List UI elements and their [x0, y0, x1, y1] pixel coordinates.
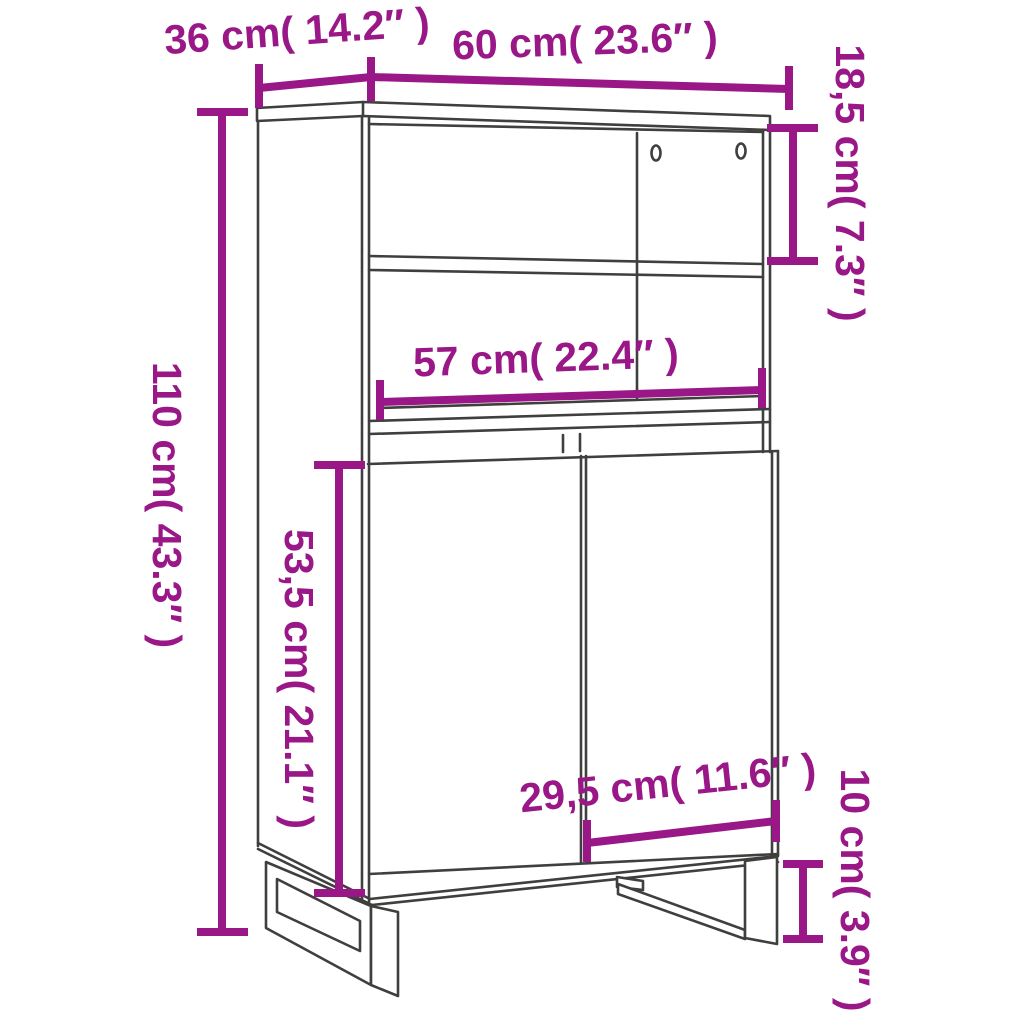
dimension-depth: 36 cm( 14.2″ ): [163, 0, 431, 108]
dimension-diagram-page: 36 cm( 14.2″ ) 60 cm( 23.6″ ) 18,5 cm( 7…: [0, 0, 1024, 1024]
dimension-leg-height: 10 cm( 3.9″ ): [783, 769, 878, 1012]
inner-width-label: 57 cm( 22.4″ ): [412, 330, 679, 385]
right-leg-near-post: [745, 857, 777, 944]
dimension-total-height: 110 cm( 43.3″ ): [144, 112, 248, 932]
left-leg-front-post: [371, 906, 398, 996]
right-leg-runner: [618, 884, 745, 939]
dimension-width: 60 cm( 23.6″ ): [371, 13, 789, 110]
leg-height-label: 10 cm( 3.9″ ): [832, 769, 878, 1012]
door-height-label: 53,5 cm( 21.1″ ): [276, 529, 322, 829]
width-label: 60 cm( 23.6″ ): [451, 13, 718, 68]
middle-board-front-top: [369, 409, 770, 421]
doors-bottom-edge: [369, 854, 778, 874]
total-height-label: 110 cm( 43.3″ ): [144, 362, 190, 648]
depth-line: [259, 77, 371, 88]
left-leg: [266, 862, 398, 996]
base-front-bottom-edge: [372, 862, 778, 905]
shelf-front-bottom-edge: [369, 270, 763, 277]
top-shelf-label: 18,5 cm( 7.3″ ): [827, 44, 873, 321]
doors-top-edge: [368, 451, 778, 464]
width-line: [371, 77, 789, 89]
screw-hole-right: [737, 144, 746, 159]
shelf-front-top-edge: [369, 256, 763, 264]
screw-hole-left: [652, 146, 661, 161]
depth-label: 36 cm( 14.2″ ): [163, 0, 431, 63]
door-width-line: [587, 821, 776, 843]
base-front-top-edge: [370, 856, 778, 899]
middle-board-front-bottom: [369, 422, 770, 434]
cabinet-dimension-diagram: 36 cm( 14.2″ ) 60 cm( 23.6″ ) 18,5 cm( 7…: [0, 0, 1024, 1024]
dimension-door-height: 53,5 cm( 21.1″ ): [276, 465, 365, 893]
inner-width-line: [380, 390, 762, 402]
